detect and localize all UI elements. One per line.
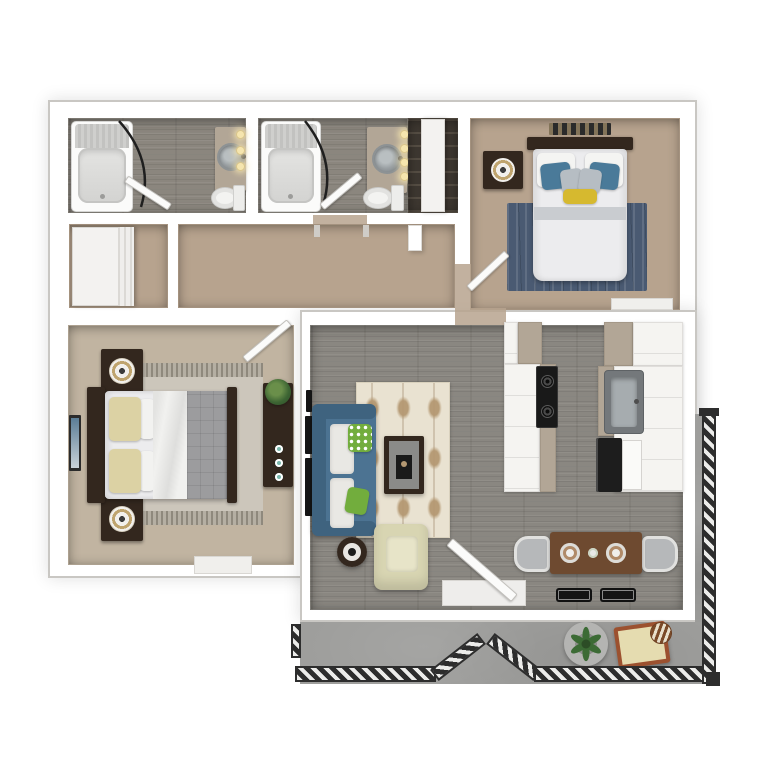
decor-bowl xyxy=(275,473,283,481)
bed xyxy=(533,149,627,281)
room-hall-closet xyxy=(69,224,168,308)
mirror-light-bulb xyxy=(236,130,245,139)
mirror-light-bulb xyxy=(236,162,245,171)
upper-cabinet xyxy=(504,322,518,364)
floorplan-3d-render xyxy=(0,0,768,768)
rug-pattern-band xyxy=(131,363,263,377)
burner xyxy=(541,375,554,388)
dining-chair xyxy=(642,536,678,572)
coffee-table-decor xyxy=(401,461,407,467)
wall-art-image xyxy=(71,418,79,468)
kitchen-sink xyxy=(604,370,644,434)
cream-pillow xyxy=(109,397,141,441)
railing-top-post xyxy=(699,408,719,416)
room-hallway xyxy=(178,224,455,308)
balcony-railing-right xyxy=(702,412,716,684)
balcony-railing-left-stub xyxy=(291,624,301,658)
sofa-armrest xyxy=(312,404,376,419)
green-patterned-pillow xyxy=(348,424,372,452)
place-setting xyxy=(560,543,580,563)
decor-bowl xyxy=(275,445,283,453)
dishwasher xyxy=(622,440,642,490)
closet-sliding-panel xyxy=(421,119,445,212)
oven xyxy=(596,438,622,492)
nightstand-top xyxy=(101,349,143,393)
wall-art xyxy=(69,415,81,471)
wall-art xyxy=(549,123,611,135)
gray-duvet xyxy=(187,391,227,499)
kitchen-faucet xyxy=(634,399,639,404)
bed-headboard xyxy=(87,387,105,503)
upper-cabinet xyxy=(633,322,683,366)
balcony-plant xyxy=(568,626,604,662)
master-bed xyxy=(105,391,227,499)
toilet-bowl xyxy=(363,187,393,209)
centerpiece xyxy=(588,548,598,558)
green-pillow xyxy=(344,486,370,515)
room-master-bedroom xyxy=(68,325,294,565)
opening-hall-to-living xyxy=(455,308,506,326)
tall-cabinet xyxy=(604,322,633,366)
closet-panel-accordion-edge xyxy=(118,227,134,306)
table-lamp xyxy=(109,506,135,532)
toilet-tank xyxy=(233,185,245,211)
coffee-table xyxy=(384,436,424,494)
armchair xyxy=(374,524,428,590)
dining-chair xyxy=(514,536,550,572)
bed-foot-rail xyxy=(227,387,237,503)
bathtub-drain xyxy=(100,194,105,199)
bathtub-drain xyxy=(288,194,293,199)
white-sheet xyxy=(153,391,187,499)
balcony-railing-bottom-right xyxy=(534,666,716,682)
armchair-cushion xyxy=(386,536,418,572)
baseboard-register xyxy=(611,298,673,310)
coffee-table-tray xyxy=(396,455,412,479)
rug-pattern-band xyxy=(131,511,263,525)
table-lamp xyxy=(109,358,135,384)
dining-table xyxy=(550,532,642,574)
table-lamp xyxy=(491,158,515,182)
nightstand xyxy=(483,151,523,189)
railing-corner-post xyxy=(706,672,720,686)
burner xyxy=(541,405,554,418)
room-linen-closet xyxy=(408,118,458,213)
floor-mat xyxy=(600,588,636,602)
peninsula-cabinets xyxy=(504,364,540,492)
blue-sofa xyxy=(312,404,376,536)
room-bedroom-2 xyxy=(470,118,680,310)
master-window-sill xyxy=(194,556,252,574)
sofa-back xyxy=(312,404,326,536)
round-side-table xyxy=(337,537,367,567)
door-jamb xyxy=(314,225,320,237)
cooktop xyxy=(536,366,558,428)
yellow-lumbar-pillow xyxy=(563,189,597,204)
cream-pillow xyxy=(109,449,141,493)
door-jamb xyxy=(363,225,369,237)
place-setting xyxy=(606,543,626,563)
mirror-light-bulb xyxy=(236,146,245,155)
floor-mat xyxy=(556,588,592,602)
wall-stub xyxy=(408,225,422,251)
tall-cabinet xyxy=(518,322,542,364)
decor-bowl xyxy=(275,459,283,467)
balcony-railing-bottom-left xyxy=(295,666,436,682)
toilet-tank xyxy=(391,185,404,211)
folded-blanket xyxy=(534,207,626,220)
nightstand-bottom xyxy=(101,497,143,541)
dresser-plant xyxy=(265,379,291,405)
